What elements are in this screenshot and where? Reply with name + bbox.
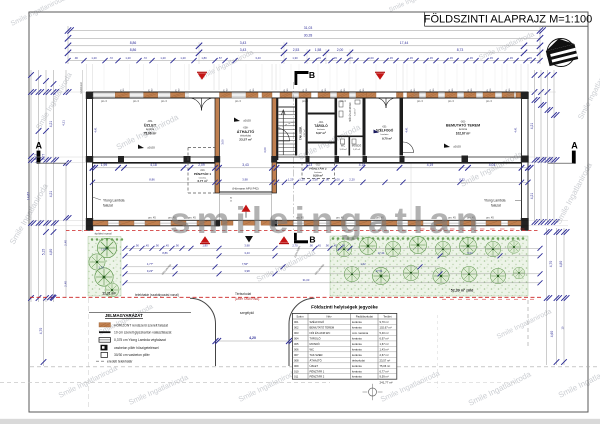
svg-text:(Leier TAVERNA): (Leier TAVERNA) [235, 297, 260, 301]
svg-text:8,86: 8,86 [149, 178, 155, 182]
svg-text:3,43: 3,43 [255, 56, 261, 60]
svg-text:.45: .45 [317, 56, 321, 60]
svg-text:1,43 m²: 1,43 m² [339, 148, 346, 151]
svg-text:3,43: 3,43 [242, 163, 249, 167]
svg-text:2,20: 2,20 [349, 178, 355, 182]
svg-text:A: A [35, 141, 42, 151]
svg-text:5,40 m²: 5,40 m² [380, 331, 389, 335]
svg-text:3,43: 3,43 [244, 251, 250, 255]
svg-text:,45: ,45 [333, 244, 337, 248]
svg-text:2,09: 2,09 [198, 163, 205, 167]
svg-text:pm. 0: pm. 0 [235, 101, 241, 103]
svg-text:8,86: 8,86 [130, 48, 137, 52]
svg-text:falazat: falazat [103, 204, 113, 208]
svg-text:A: A [571, 141, 578, 151]
svg-text:.45: .45 [409, 56, 413, 60]
svg-text:NŐI ÉS AKM.WC: NŐI ÉS AKM.WC [349, 102, 352, 122]
svg-text:3,98: 3,98 [244, 244, 250, 248]
svg-text:8,86: 8,86 [130, 41, 137, 45]
svg-text:23,57 m²: 23,57 m² [239, 138, 251, 142]
svg-text:4,19: 4,19 [427, 163, 434, 167]
svg-text:3,00: 3,00 [263, 147, 267, 153]
svg-text:.90: .90 [155, 244, 159, 248]
svg-text:Név: Név [327, 314, 333, 318]
svg-text:1,67 m²: 1,67 m² [380, 342, 389, 346]
svg-text:.45: .45 [449, 56, 453, 60]
svg-text:241,77 m²: 241,77 m² [380, 380, 393, 384]
svg-text:JELMAGYARÁZAT: JELMAGYARÁZAT [105, 313, 143, 318]
svg-text:MOSDÓ: MOSDÓ [352, 145, 362, 148]
svg-text:ÁTHAJTÓ: ÁTHAJTÓ [237, 129, 255, 134]
svg-text:4,21: 4,21 [49, 191, 53, 198]
svg-text:WC: WC [310, 347, 315, 351]
svg-text:6,77 m²: 6,77 m² [380, 369, 389, 373]
svg-text:.57: .57 [218, 56, 222, 60]
svg-text:7,56*: 7,56* [242, 262, 248, 266]
svg-text:com. kerámia: com. kerámia [352, 331, 369, 335]
svg-text:SZÉLFOGÓ: SZÉLFOGÓ [376, 128, 394, 133]
svg-text:75,06 m²: 75,06 m² [380, 364, 391, 368]
svg-text:9,70 m²: 9,70 m² [380, 320, 389, 324]
svg-text:PÉNZTÁR 1: PÉNZTÁR 1 [194, 171, 211, 176]
svg-text:17,51: 17,51 [376, 269, 383, 273]
svg-text:pm. 0: pm. 0 [486, 101, 492, 103]
svg-text:eredeti telekhatár: eredeti telekhatár [107, 360, 133, 364]
svg-text:1,20: 1,20 [160, 56, 166, 60]
svg-text:4,04: 4,04 [489, 163, 496, 167]
svg-text:.45: .45 [489, 56, 493, 60]
svg-text:001: 001 [294, 320, 299, 324]
svg-text:szegélykő: szegélykő [240, 311, 254, 315]
svg-text:.45: .45 [469, 56, 473, 60]
svg-text:52,39 m² zöld: 52,39 m² zöld [451, 289, 474, 293]
svg-text:.45: .45 [333, 56, 337, 60]
svg-text:Szám: Szám [296, 314, 304, 318]
svg-text:.90: .90 [175, 244, 179, 248]
svg-text:2,40: 2,40 [64, 281, 68, 287]
svg-text:kerámia: kerámia [381, 133, 390, 136]
svg-text:2,53: 2,53 [293, 48, 300, 52]
svg-text:pm. 0: pm. 0 [101, 101, 107, 103]
svg-text:.90: .90 [325, 178, 329, 182]
svg-text:kerámia: kerámia [352, 369, 362, 373]
svg-text:1,30: 1,30 [292, 56, 298, 60]
svg-text:008: 008 [294, 358, 299, 362]
svg-text:.72: .72 [109, 56, 113, 60]
svg-text:4,21: 4,21 [62, 120, 66, 126]
svg-text:térburkolat: térburkolat [352, 358, 365, 362]
svg-text:2,67 m²: 2,67 m² [380, 353, 389, 357]
svg-text:kerámia: kerámia [352, 336, 362, 340]
svg-text:1,80: 1,80 [202, 244, 208, 248]
svg-text:31,03: 31,03 [303, 278, 310, 282]
svg-text:5,15: 5,15 [42, 249, 46, 256]
svg-text:(Hörmann APU F42): (Hörmann APU F42) [232, 186, 258, 190]
svg-text:9,23*: 9,23* [147, 269, 153, 273]
svg-text:75,06 m²: 75,06 m² [144, 132, 157, 136]
svg-text:.45: .45 [389, 56, 393, 60]
svg-text:9,70 m²: 9,70 m² [382, 137, 392, 141]
svg-text:.90: .90 [74, 56, 78, 60]
svg-text:.45: .45 [349, 56, 353, 60]
svg-text:8,86: 8,86 [162, 251, 168, 255]
svg-text:11,21 m²: 11,21 m² [102, 292, 116, 296]
svg-text:kerámia: kerámia [352, 347, 362, 351]
svg-text:3,98: 3,98 [244, 269, 250, 273]
svg-text:0,375 cm Ytong Lambda végfalaz: 0,375 cm Ytong Lambda végfalazat [114, 338, 166, 342]
svg-text:pm. 0: pm. 0 [417, 101, 423, 103]
svg-text:3,00: 3,00 [221, 139, 225, 145]
svg-text:8,73: 8,73 [457, 48, 464, 52]
svg-text:002: 002 [294, 325, 299, 329]
svg-text:4,41: 4,41 [514, 127, 518, 133]
svg-text:009: 009 [294, 364, 299, 368]
svg-text:FÖLDSZINTI ALAPRAJZ M=1:100: FÖLDSZINTI ALAPRAJZ M=1:100 [424, 13, 592, 25]
svg-text:005: 005 [294, 342, 299, 346]
svg-text:4,70: 4,70 [549, 261, 553, 268]
svg-text:,45: ,45 [145, 244, 149, 248]
svg-text:31,03: 31,03 [304, 26, 313, 30]
svg-text:4,80: 4,80 [49, 249, 53, 256]
svg-text:vasbeton pillér hőszigetelésse: vasbeton pillér hőszigeteléssel [114, 346, 159, 350]
svg-text:1,20: 1,20 [125, 56, 131, 60]
svg-text:építési vonal: építési vonal [95, 231, 112, 235]
svg-text:TAK.SZER.: TAK.SZER. [299, 126, 303, 140]
svg-text:Ytong Lambda: Ytong Lambda [103, 199, 125, 203]
svg-text:1,62: 1,62 [360, 262, 366, 266]
svg-text:010: 010 [294, 369, 299, 373]
svg-text:2,40: 2,40 [64, 240, 68, 246]
svg-text:.45: .45 [528, 56, 532, 60]
svg-text:006: 006 [294, 347, 299, 351]
svg-text:17,44: 17,44 [378, 251, 385, 255]
svg-text:3,43: 3,43 [240, 48, 247, 52]
svg-text:HORIZONT rendszerű szerelt fal: HORIZONT rendszerű szerelt falazat [114, 324, 168, 328]
svg-text:BEMUTATÓ TEREM: BEMUTATÓ TEREM [446, 123, 480, 128]
svg-text:B: B [309, 70, 315, 80]
svg-text:.90: .90 [325, 244, 329, 248]
svg-text:Ytong Lambda: Ytong Lambda [484, 199, 506, 203]
svg-text:2,67 m²: 2,67 m² [303, 129, 306, 137]
svg-text:4,21: 4,21 [530, 123, 534, 130]
svg-text:,45: ,45 [317, 244, 321, 248]
svg-text:pm. 45: pm. 45 [486, 217, 494, 220]
svg-text:kerámia: kerámia [352, 325, 362, 329]
svg-text:6,97 m²: 6,97 m² [380, 336, 389, 340]
svg-text:kerámia: kerámia [352, 320, 362, 324]
svg-text:4,77*: 4,77* [147, 262, 153, 266]
svg-text:2,00: 2,00 [337, 48, 344, 52]
svg-text:7,87*: 7,87* [101, 248, 107, 252]
svg-text:kerámia: kerámia [352, 364, 362, 368]
svg-text:1,58: 1,58 [315, 48, 322, 52]
svg-text:10 cm szerelt gipszkarton vála: 10 cm szerelt gipszkarton válaszfalazat [114, 331, 171, 335]
svg-text:17,44: 17,44 [400, 41, 409, 45]
svg-text:004: 004 [294, 336, 299, 340]
svg-text:30,28: 30,28 [304, 34, 313, 38]
svg-text:1,00: 1,00 [368, 56, 374, 60]
svg-text:6,97 m²: 6,97 m² [316, 131, 326, 135]
svg-text:ÜZLET: ÜZLET [310, 364, 319, 368]
svg-text:±0,00: ±0,00 [453, 145, 461, 149]
svg-text:3,98: 3,98 [242, 178, 248, 182]
svg-text:1,20: 1,20 [180, 56, 186, 60]
svg-text:.90: .90 [309, 244, 313, 248]
svg-text:4,21: 4,21 [49, 121, 53, 128]
svg-text:007: 007 [294, 353, 299, 357]
svg-text:011: 011 [294, 375, 299, 379]
svg-text:.45: .45 [429, 56, 433, 60]
svg-text:1,43 m²: 1,43 m² [380, 347, 389, 351]
svg-text:,45: ,45 [165, 244, 169, 248]
svg-text:30/30 cm vasbeton pillér: 30/30 cm vasbeton pillér [114, 353, 151, 357]
svg-text:1,20: 1,20 [91, 56, 97, 60]
svg-text:4,80: 4,80 [559, 261, 563, 268]
svg-text:pm. 0: pm. 0 [448, 101, 454, 103]
svg-text:1,20: 1,20 [299, 178, 305, 182]
svg-text:4,41: 4,41 [94, 127, 98, 133]
svg-text:pm. 0: pm. 0 [161, 101, 167, 103]
svg-text:1,80: 1,80 [201, 56, 207, 60]
svg-text:pm. 0: pm. 0 [133, 101, 139, 103]
svg-text:102,67 m²: 102,67 m² [456, 131, 471, 135]
svg-text:.72: .72 [143, 56, 147, 60]
svg-text:telekhatár (szabályozási vonal: telekhatár (szabályozási vonal) [135, 293, 179, 297]
svg-text:ÜZLET: ÜZLET [144, 122, 157, 127]
svg-text:kerámia: kerámia [352, 353, 362, 357]
svg-text:Terület: Terület [383, 314, 392, 318]
svg-text:smileingatlan: smileingatlan [170, 200, 484, 241]
svg-text:±0,00: ±0,00 [243, 119, 251, 123]
svg-text:1,23: 1,23 [288, 178, 294, 182]
svg-text:1,99: 1,99 [101, 163, 108, 167]
svg-text:falazat: falazat [491, 204, 501, 208]
svg-text:102,67 m²: 102,67 m² [380, 325, 392, 329]
svg-text:9,59 m²: 9,59 m² [380, 375, 389, 379]
svg-text:4,21: 4,21 [530, 193, 534, 200]
svg-text:1,70: 1,70 [98, 266, 104, 270]
svg-text:4,70: 4,70 [39, 328, 43, 335]
svg-text:TAK.SZER.: TAK.SZER. [310, 353, 324, 357]
svg-text:TÁROLÓ: TÁROLÓ [314, 123, 328, 128]
svg-text:5,02: 5,02 [467, 251, 473, 255]
svg-text:WC: WC [341, 145, 345, 148]
svg-text:kerámia: kerámia [352, 342, 362, 346]
svg-text:Földszinti helyiségek jegyzéke: Földszinti helyiségek jegyzéke [311, 304, 378, 309]
svg-text:4,41: 4,41 [405, 127, 409, 133]
svg-text:23,57 m²: 23,57 m² [380, 358, 391, 362]
svg-text:1,67 m²: 1,67 m² [353, 148, 360, 151]
svg-text:kerámia: kerámia [352, 375, 362, 379]
svg-text:4,60: 4,60 [550, 331, 554, 338]
svg-text:Térburkolat: Térburkolat [235, 292, 251, 296]
svg-text:4,20: 4,20 [249, 336, 256, 340]
svg-text:±0,00: ±0,00 [147, 146, 155, 150]
svg-text:5,40 m²: 5,40 m² [354, 108, 357, 116]
svg-text:14,67: 14,67 [27, 192, 31, 200]
svg-text:3,43: 3,43 [240, 41, 247, 45]
svg-text:.45: .45 [509, 56, 513, 60]
svg-text:1,58: 1,58 [312, 178, 318, 182]
svg-text:pm. 45: pm. 45 [148, 217, 156, 220]
svg-text:Padlóburkolat: Padlóburkolat [356, 314, 373, 318]
svg-text:.90: .90 [135, 244, 139, 248]
svg-text:003: 003 [294, 331, 299, 335]
svg-text:4,18: 4,18 [150, 163, 157, 167]
